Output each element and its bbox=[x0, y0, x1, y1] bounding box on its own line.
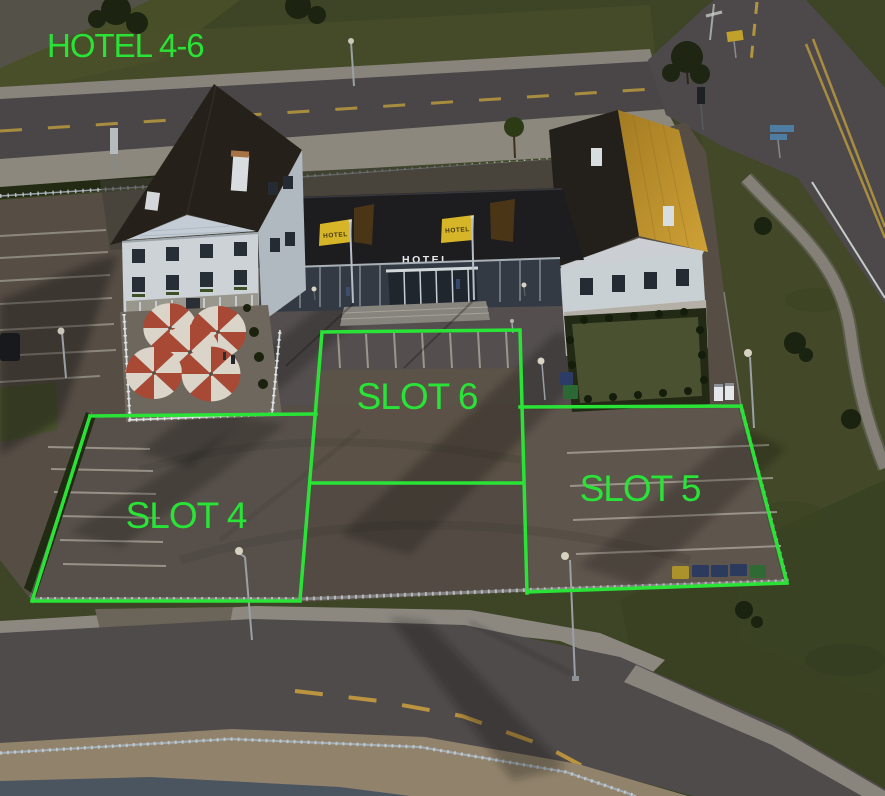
garden bbox=[564, 308, 710, 412]
road-sign bbox=[110, 128, 118, 154]
slot-6-label: SLOT 6 bbox=[357, 376, 478, 417]
right-chimney-2 bbox=[663, 206, 674, 226]
terrace bbox=[120, 303, 282, 422]
tree-trunk bbox=[514, 136, 515, 158]
umbrella bbox=[126, 347, 182, 399]
game-screenshot: HOTEL HOTEL HOTEL bbox=[0, 0, 885, 796]
slot-5-label: SLOT 5 bbox=[580, 468, 701, 509]
left-chimney-small bbox=[145, 191, 160, 211]
parked-car bbox=[0, 333, 20, 361]
right-chimney-1 bbox=[591, 148, 602, 166]
tree-trunk bbox=[687, 72, 688, 84]
roof-wedge-right bbox=[490, 199, 515, 242]
roof-wedge-left bbox=[354, 204, 374, 245]
umbrella bbox=[182, 347, 241, 402]
annotation-title: HOTEL 4-6 bbox=[47, 27, 204, 64]
street-lamp-head bbox=[348, 38, 354, 44]
left-chimney-big bbox=[231, 154, 249, 191]
tree-canopy bbox=[504, 117, 524, 137]
garden-lawn bbox=[572, 317, 702, 403]
slot-4-label: SLOT 4 bbox=[126, 495, 247, 536]
left-chimney-cap bbox=[231, 150, 249, 157]
scene-canvas: HOTEL HOTEL HOTEL bbox=[0, 0, 885, 796]
